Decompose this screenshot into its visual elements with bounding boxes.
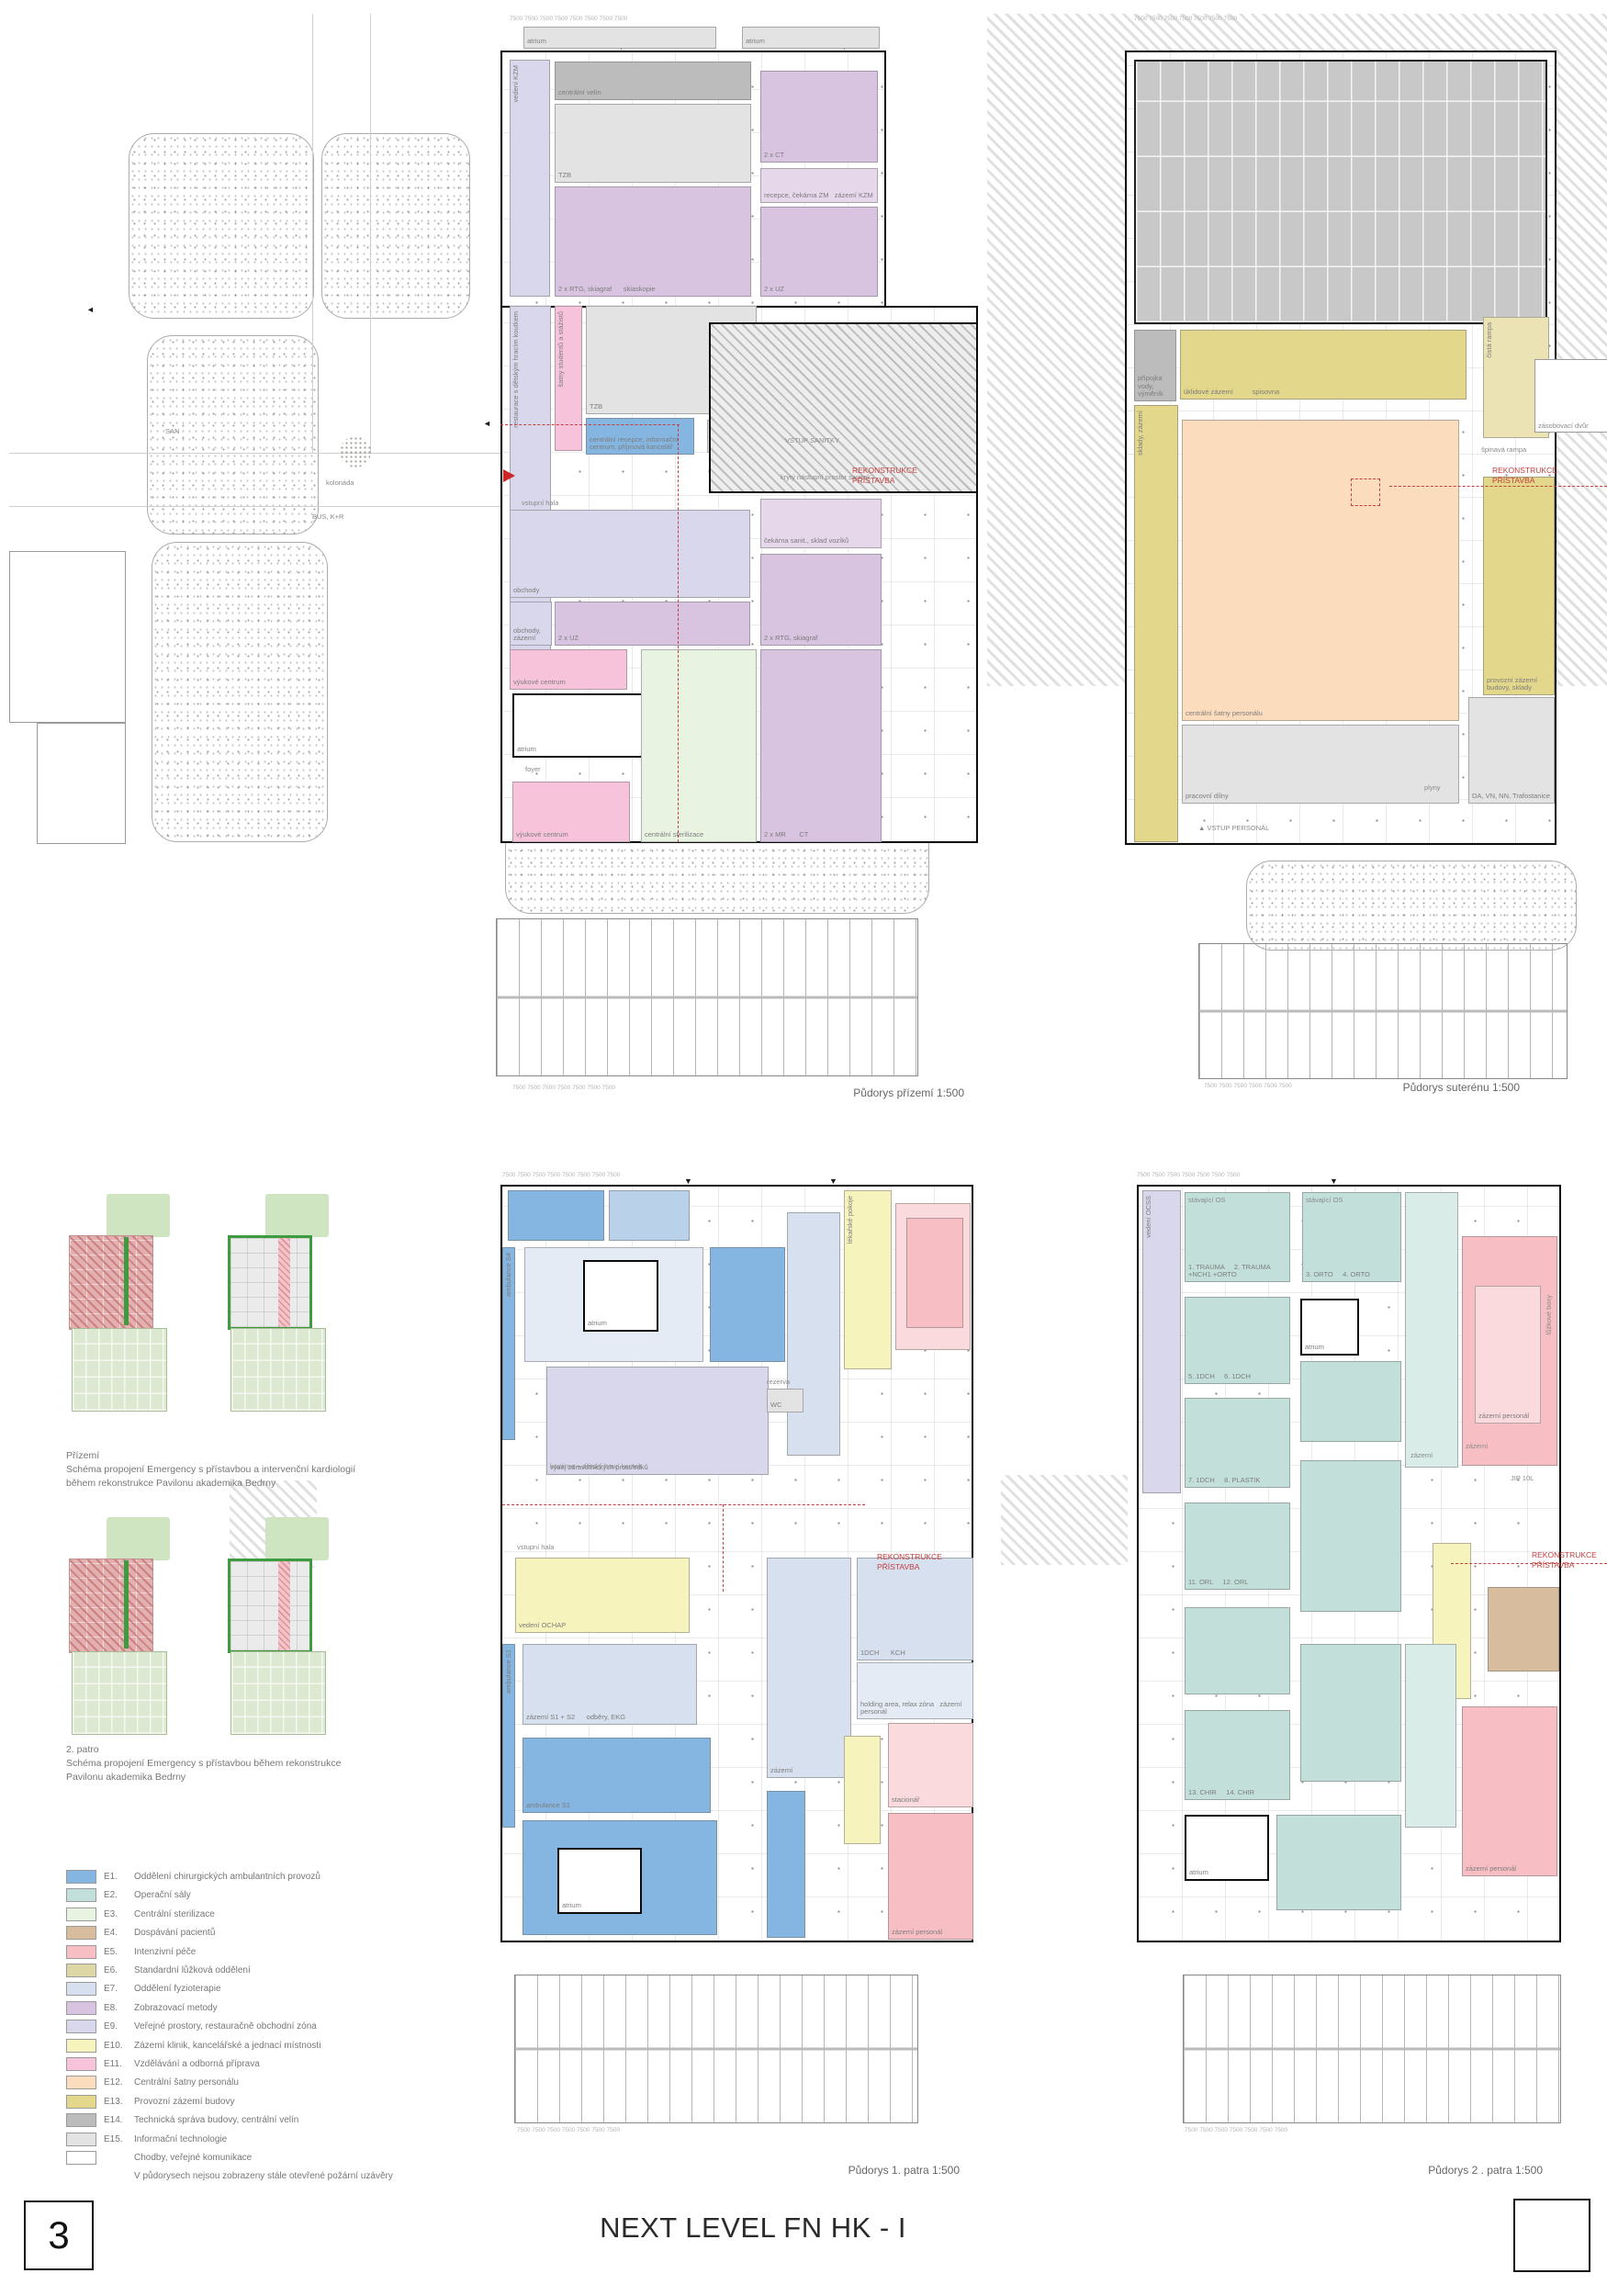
schema-connection-line [124, 1560, 129, 1649]
legend-label: Standardní lůžková oddělení [134, 1965, 251, 1975]
schema-park-area [107, 1517, 170, 1560]
schema-lower-wing [230, 1651, 325, 1735]
schema-caption: 2. patro Schéma propojení Emergency s př… [66, 1743, 489, 1785]
room-block: obchody, zázemí [510, 602, 552, 646]
room-label: ambulance S1 [526, 1802, 570, 1810]
tree-bed [1246, 861, 1577, 951]
room-label: špinavá rampa [1481, 445, 1526, 454]
room-label: centrální sterilizace [645, 831, 703, 839]
legend-swatch [66, 2057, 96, 2071]
room-block: sklady, zázemí [1134, 405, 1178, 842]
legend-code: E13. [104, 2097, 123, 2107]
room-label: čistá rampa [1486, 322, 1494, 358]
legend-label: Provozní zázemí budovy [134, 2097, 235, 2107]
room-block: vedení OCSS [1142, 1190, 1181, 1493]
legend-code: E1. [104, 1872, 118, 1882]
room-block [1300, 1460, 1401, 1612]
red-dashed-line [502, 1504, 865, 1505]
legend-swatch [66, 1982, 96, 1996]
legend-code: E15. [104, 2134, 123, 2144]
competition-board-sheet: 3 NEXT LEVEL FN HK - I 7500 7500 7500 75… [0, 0, 1607, 2296]
room-label: TZB [558, 172, 571, 180]
legend-swatch [66, 2151, 96, 2165]
room-block: atrium [1300, 1299, 1359, 1356]
dimension-string: 7500 7500 7500 7500 7500 7500 7500 [1137, 1172, 1555, 1181]
room-label: zázemí personál [1466, 1865, 1516, 1874]
schema-park-area [265, 1194, 329, 1237]
room-label: ambulance S1 [505, 1649, 513, 1694]
legend-code: E10. [104, 2041, 123, 2051]
red-dashed-line [723, 1504, 724, 1592]
room-label: foyer [525, 765, 541, 773]
existing-building-outline [37, 723, 126, 844]
room-block [1300, 1361, 1401, 1442]
legend-swatch [66, 1964, 96, 1977]
courtyard-outline: zásobovací dvůr [1534, 359, 1607, 433]
room-label: 2 x MR CT [764, 831, 808, 839]
room-label: zázemí [1410, 1451, 1433, 1459]
room-block: 2 x RTG, skiagraf skiaskopie [555, 186, 751, 297]
red-dashed-box [1351, 478, 1380, 506]
room-block: zázemí personál [1462, 1706, 1557, 1876]
schema-caption: Přízemí Schéma propojení Emergency s pří… [66, 1449, 489, 1491]
room-block [609, 1190, 690, 1241]
room-block: atrium [742, 27, 880, 49]
legend-label: Intenzivní péče [134, 1947, 196, 1957]
room-label: 13. CHIR 14. CHIR [1188, 1789, 1254, 1797]
schema-park-area [265, 1517, 329, 1560]
room-block: 1. TRAUMA 2. TRAUMA +NCH1 +ORTO [1185, 1192, 1290, 1282]
room-block: TZB [555, 104, 751, 183]
room-label: WC [770, 1401, 782, 1410]
legend-label: Oddělení chirurgických ambulantních prov… [134, 1872, 320, 1882]
room-label: restaurace s dětským hracím koutkem [512, 311, 521, 428]
room-block: centrální velín [555, 62, 751, 100]
room-block: 2 x MR CT [760, 649, 882, 842]
room-label: 7. 1DCH 8. PLASTIK [1188, 1477, 1260, 1485]
room-label: rezerva [767, 1378, 790, 1386]
room-label: zázemí personál [892, 1929, 942, 1937]
direction-arrow: ◄ [86, 306, 95, 314]
room-block: zázemí [767, 1558, 851, 1778]
red-triangle-marker [503, 469, 515, 482]
room-label: vstupní hala [517, 1543, 554, 1551]
room-label: zázemí [1466, 1442, 1488, 1450]
room-label: kolonáda [326, 478, 354, 487]
room-block: přípojka vody, výměník [1134, 330, 1176, 401]
room-block [1405, 1192, 1458, 1468]
room-block [767, 1791, 805, 1938]
room-label: přípojka vody, výměník [1138, 375, 1175, 399]
road [9, 453, 523, 507]
room-block: čekárna sanit., sklad vozíků [760, 499, 882, 548]
room-label: 2 x RTG, skiagraf skiaskopie [558, 286, 656, 294]
schema-building [69, 1235, 153, 1330]
room-label: 11. ORL 12. ORL [1188, 1579, 1248, 1587]
legend-label: Vzdělávání a odborná příprava [134, 2059, 260, 2069]
room-block: WC [767, 1389, 803, 1412]
room-label: 1. TRAUMA 2. TRAUMA +NCH1 +ORTO [1188, 1264, 1289, 1279]
tree-bed [152, 542, 328, 842]
room-label: obchody [513, 587, 539, 595]
room-block: pracovní dílny [1182, 725, 1459, 804]
schema-pink-strip [278, 1238, 290, 1327]
room-label: centrální šatny personálu [1186, 710, 1263, 718]
room-block: 2 x RTG, skiagraf [760, 554, 882, 646]
room-block [787, 1212, 840, 1456]
room-block: výukové centrum [510, 649, 627, 690]
legend-code: E2. [104, 1890, 118, 1900]
room-block: stacionář [888, 1723, 973, 1807]
room-block: 7. 1DCH 8. PLASTIK [1185, 1398, 1290, 1488]
schema-lower-wing [72, 1328, 166, 1412]
parking-lot [496, 918, 918, 1076]
legend-code: E8. [104, 2003, 118, 2013]
room-label: 2 x UZ [764, 286, 784, 294]
schema-connection-line [124, 1237, 129, 1325]
dimension-string: 7500 7500 7500 7500 7500 7500 7500 7500 [510, 16, 941, 25]
room-label: 5. 1DCH 6. 1DCH [1188, 1373, 1251, 1381]
room-block: atrium [583, 1260, 658, 1332]
room-label: obchody, zázemí [513, 627, 551, 643]
room-block: zázemí S1 + S2 odběry, EKG [523, 1644, 697, 1725]
plan-patro2: 7500 7500 7500 7500 7500 7500 75007500 7… [1129, 1148, 1607, 2181]
room-label: provozní zázemí budovy, sklady [1487, 677, 1554, 692]
room-label: atrium [562, 1902, 581, 1910]
legend-label: Chodby, veřejné komunikace [134, 2153, 252, 2163]
dimension-string: 7500 7500 7500 7500 7500 7500 7500 [1134, 16, 1552, 25]
schema-building [228, 1559, 312, 1653]
room-label: atrium [527, 38, 546, 46]
legend-label: Zázemí klinik, kancelářské a jednací mís… [134, 2041, 320, 2051]
schema-lower-wing [230, 1328, 325, 1412]
room-block: atrium [557, 1848, 642, 1914]
schema-lower-wing [72, 1651, 166, 1735]
corner-box [1513, 2199, 1590, 2272]
room-label: JIP 10L [1511, 1474, 1534, 1482]
room-block: šatny studentů a stážistů [555, 306, 582, 451]
room-label: sklady, zázemí [1137, 411, 1145, 456]
room-block: zázemí personál [1475, 1286, 1541, 1424]
room-block [710, 1247, 785, 1362]
legend-note: V půdorysech nejsou zobrazeny stále otev… [134, 2171, 393, 2181]
room-block [1134, 60, 1547, 324]
legend-swatch [66, 1870, 96, 1884]
legend-code: E3. [104, 1909, 118, 1919]
room-label: 2 x RTG, skiagraf [764, 635, 817, 643]
plan-caption: Půdorys 2 . patra 1:500 [1332, 2164, 1543, 2177]
legend-label: Technická správa budovy, centrální velín [134, 2115, 298, 2125]
room-block [844, 1736, 881, 1844]
legend-swatch [66, 1908, 96, 1921]
room-block: 11. ORL 12. ORL [1185, 1503, 1290, 1590]
red-dashed-line [1389, 486, 1607, 487]
room-block: 13. CHIR 14. CHIR [1185, 1710, 1290, 1800]
dimension-string: 7500 7500 7500 7500 7500 7500 7500 [517, 2127, 914, 2136]
room-block: 1DCH KCH [857, 1558, 973, 1660]
legend-label: Operační sály [134, 1890, 191, 1900]
room-label: zázemí S1 + S2 odběry, EKG [526, 1714, 625, 1722]
room-block: obchody [510, 510, 750, 598]
plan-caption: Půdorys přízemí 1:500 [643, 1086, 964, 1099]
room-label: atrium [517, 746, 536, 754]
room-block: provozní zázemí budovy, sklady [1483, 477, 1555, 695]
room-label: 1DCH KCH [860, 1649, 905, 1658]
room-block: atrium [1185, 1815, 1269, 1881]
legend-code: E12. [104, 2077, 123, 2088]
legend-swatch [66, 1888, 96, 1902]
room-label: atrium [746, 38, 765, 46]
room-label: 2 x CT [764, 152, 784, 160]
legend-swatch [66, 2133, 96, 2146]
road [312, 14, 371, 453]
room-label: vedení OCSS [1145, 1196, 1153, 1238]
room-label: centrální velín [558, 89, 601, 97]
room-label: výukové centrum [513, 679, 566, 687]
legend-swatch [66, 2020, 96, 2033]
room-label: VSTUP SANITKY [785, 436, 839, 445]
room-label: šatny studentů a stážistů [557, 311, 566, 388]
schema-diagram [69, 1517, 174, 1733]
room-label: pracovní dílny [1186, 793, 1229, 801]
room-label: zásobovací dvůr [1538, 422, 1589, 430]
red-dashed-line [500, 424, 680, 425]
plan-patro1: 7500 7500 7500 7500 7500 7500 7500 75007… [491, 1148, 983, 2181]
room-label: vstupní hala [522, 499, 558, 507]
room-block [1185, 1607, 1290, 1694]
schema-building [228, 1235, 312, 1330]
room-label: 3. ORTO 4. ORTO [1306, 1271, 1370, 1279]
room-block: výukové centrum [512, 782, 630, 842]
reconstruction-label: REKONSTRUKCE PŘÍSTAVBA [852, 466, 917, 485]
room-label: atrium [1189, 1869, 1208, 1877]
legend-swatch [66, 2076, 96, 2089]
room-label: stacionář [892, 1796, 919, 1805]
room-label: lékařské pokoje [847, 1196, 855, 1244]
schema-diagram [69, 1194, 174, 1410]
legend-swatch [66, 2039, 96, 2053]
legend-swatch [66, 2001, 96, 2015]
page-number-box: 3 [24, 2200, 94, 2270]
legend-code: E14. [104, 2115, 123, 2125]
legend-label: Centrální sterilizace [134, 1909, 215, 1919]
plan-suteren: 7500 7500 7500 7500 7500 7500 75007500 7… [987, 14, 1607, 1102]
sheet-title: NEXT LEVEL FN HK - I [600, 2212, 906, 2245]
legend-code: E5. [104, 1947, 118, 1957]
schema-diagram [228, 1194, 333, 1410]
room-block: úklidové zázemí spisovna [1180, 330, 1467, 400]
legend-code: E11. [104, 2059, 122, 2069]
room-block [508, 1190, 604, 1241]
plan-prizemi: 7500 7500 7500 7500 7500 7500 7500 75007… [9, 14, 978, 1102]
legend-swatch [66, 2095, 96, 2109]
room-block: 2 x CT [760, 71, 878, 163]
legend-label: Dospávání pacientů [134, 1928, 215, 1938]
parking-lot [514, 1975, 918, 2123]
reconstruction-label: REKONSTRUKCE PŘÍSTAVBA [1492, 466, 1557, 485]
room-label: čekárna sanit., sklad vozíků [764, 537, 848, 546]
room-label: holding area, relax zóna zázemí personál [860, 1701, 972, 1716]
legend-swatch [66, 1945, 96, 1959]
room-block: holding area, relax zóna zázemí personál [857, 1662, 973, 1719]
direction-arrow: ◄ [483, 420, 491, 428]
reconstruction-label: REKONSTRUKCE PŘÍSTAVBA [877, 1552, 942, 1571]
room-block: atrium [523, 27, 716, 49]
plan-caption: Půdorys suterénu 1:500 [1290, 1081, 1520, 1094]
room-block: ambulance S1 [502, 1644, 515, 1828]
legend-code: E4. [104, 1928, 118, 1938]
room-block [1300, 1644, 1401, 1782]
room-block [1276, 1815, 1401, 1910]
legend-label: Informační technologie [134, 2134, 227, 2144]
room-label: stávající OS [1306, 1196, 1343, 1204]
legend-code: E7. [104, 1984, 118, 1994]
room-label: ambulance S4 [505, 1253, 513, 1297]
room-block: ambulance S4 [502, 1247, 515, 1440]
room-block: 5. 1DCH 6. 1DCH [1185, 1297, 1290, 1384]
legend-code: E9. [104, 2021, 118, 2032]
room-block: centrální sterilizace [641, 649, 757, 842]
room-label: 2 x UZ [558, 635, 579, 643]
legend-label: Centrální šatny personálu [134, 2077, 239, 2088]
parking-lot [1198, 943, 1568, 1079]
room-block [709, 322, 978, 493]
existing-building-outline [9, 551, 126, 723]
room-block: výdej zdravotnických prostředků [546, 1367, 769, 1475]
plan-caption: Půdorys 1. patra 1:500 [721, 2164, 960, 2177]
legend-label: Veřejné prostory, restauračně obchodní z… [134, 2021, 317, 2032]
reconstruction-label: REKONSTRUKCE PŘÍSTAVBA [1532, 1550, 1597, 1570]
room-label: atrium [1305, 1344, 1324, 1352]
dimension-string: 7500 7500 7500 7500 7500 7500 7500 [1185, 2127, 1559, 2136]
room-block: 2 x UZ [555, 602, 750, 646]
dimension-string: 7500 7500 7500 7500 7500 7500 7500 7500 [502, 1172, 961, 1181]
room-block: vedení KZM [510, 60, 550, 297]
legend-label: Oddělení fyzioterapie [134, 1984, 221, 1994]
legend-code: E6. [104, 1965, 118, 1975]
room-block: vedení OCHAP [515, 1558, 690, 1633]
room-block: zázemí personál [888, 1813, 973, 1940]
room-block: DA, VN, NN, Trafostanice [1468, 697, 1555, 804]
room-block: lékařské pokoje [844, 1190, 892, 1369]
room-block [1488, 1587, 1559, 1671]
room-block: centrální šatny personálu [1182, 420, 1459, 721]
room-label: úklidové zázemí spisovna [1184, 388, 1279, 397]
legend-label: Zobrazovací metody [134, 2003, 218, 2013]
hatched-existing-building [1001, 1475, 1128, 1565]
room-label: DA, VN, NN, Trafostanice [1472, 793, 1550, 801]
room-label: vedení OCHAP [519, 1622, 566, 1630]
red-dashed-line [678, 424, 679, 842]
room-label: výukové centrum [516, 831, 568, 839]
room-label: lůžkové boxy [1545, 1295, 1553, 1334]
room-label: vedení KZM [512, 65, 521, 102]
room-block [1405, 1644, 1456, 1828]
room-block: ambulance S1 [523, 1738, 711, 1813]
room-label: zázemí personál [1478, 1412, 1529, 1421]
room-block [906, 1218, 963, 1328]
legend-swatch [66, 2113, 96, 2127]
page-number: 3 [48, 2213, 69, 2257]
room-block: 3. ORTO 4. ORTO [1302, 1192, 1401, 1282]
room-label: atrium [588, 1320, 607, 1328]
schema-diagram [228, 1517, 333, 1733]
room-label: kavárna + dětský hrací koutek [550, 1462, 642, 1470]
schema-park-area [107, 1194, 170, 1237]
legend-swatch [66, 1926, 96, 1940]
room-label: BUS, K+R [312, 512, 343, 521]
room-label: plyny [1424, 783, 1441, 792]
room-label: SAN [165, 427, 179, 435]
room-block: 2 x UZ [760, 207, 878, 297]
room-label: recepce, čekárna ZM zázemí KZM [764, 192, 873, 200]
atrium-tree [340, 436, 371, 467]
schema-pink-strip [278, 1561, 290, 1650]
schema-building [69, 1559, 153, 1653]
room-label: ▲ VSTUP PERSONÁL [1198, 824, 1269, 832]
room-label: TZB [590, 403, 602, 411]
parking-lot [1183, 1975, 1561, 2123]
room-block: recepce, čekárna ZM zázemí KZM [760, 168, 878, 203]
tree-bed [129, 133, 314, 319]
room-label: stávající OS [1188, 1196, 1225, 1204]
room-label: zázemí [770, 1767, 792, 1775]
